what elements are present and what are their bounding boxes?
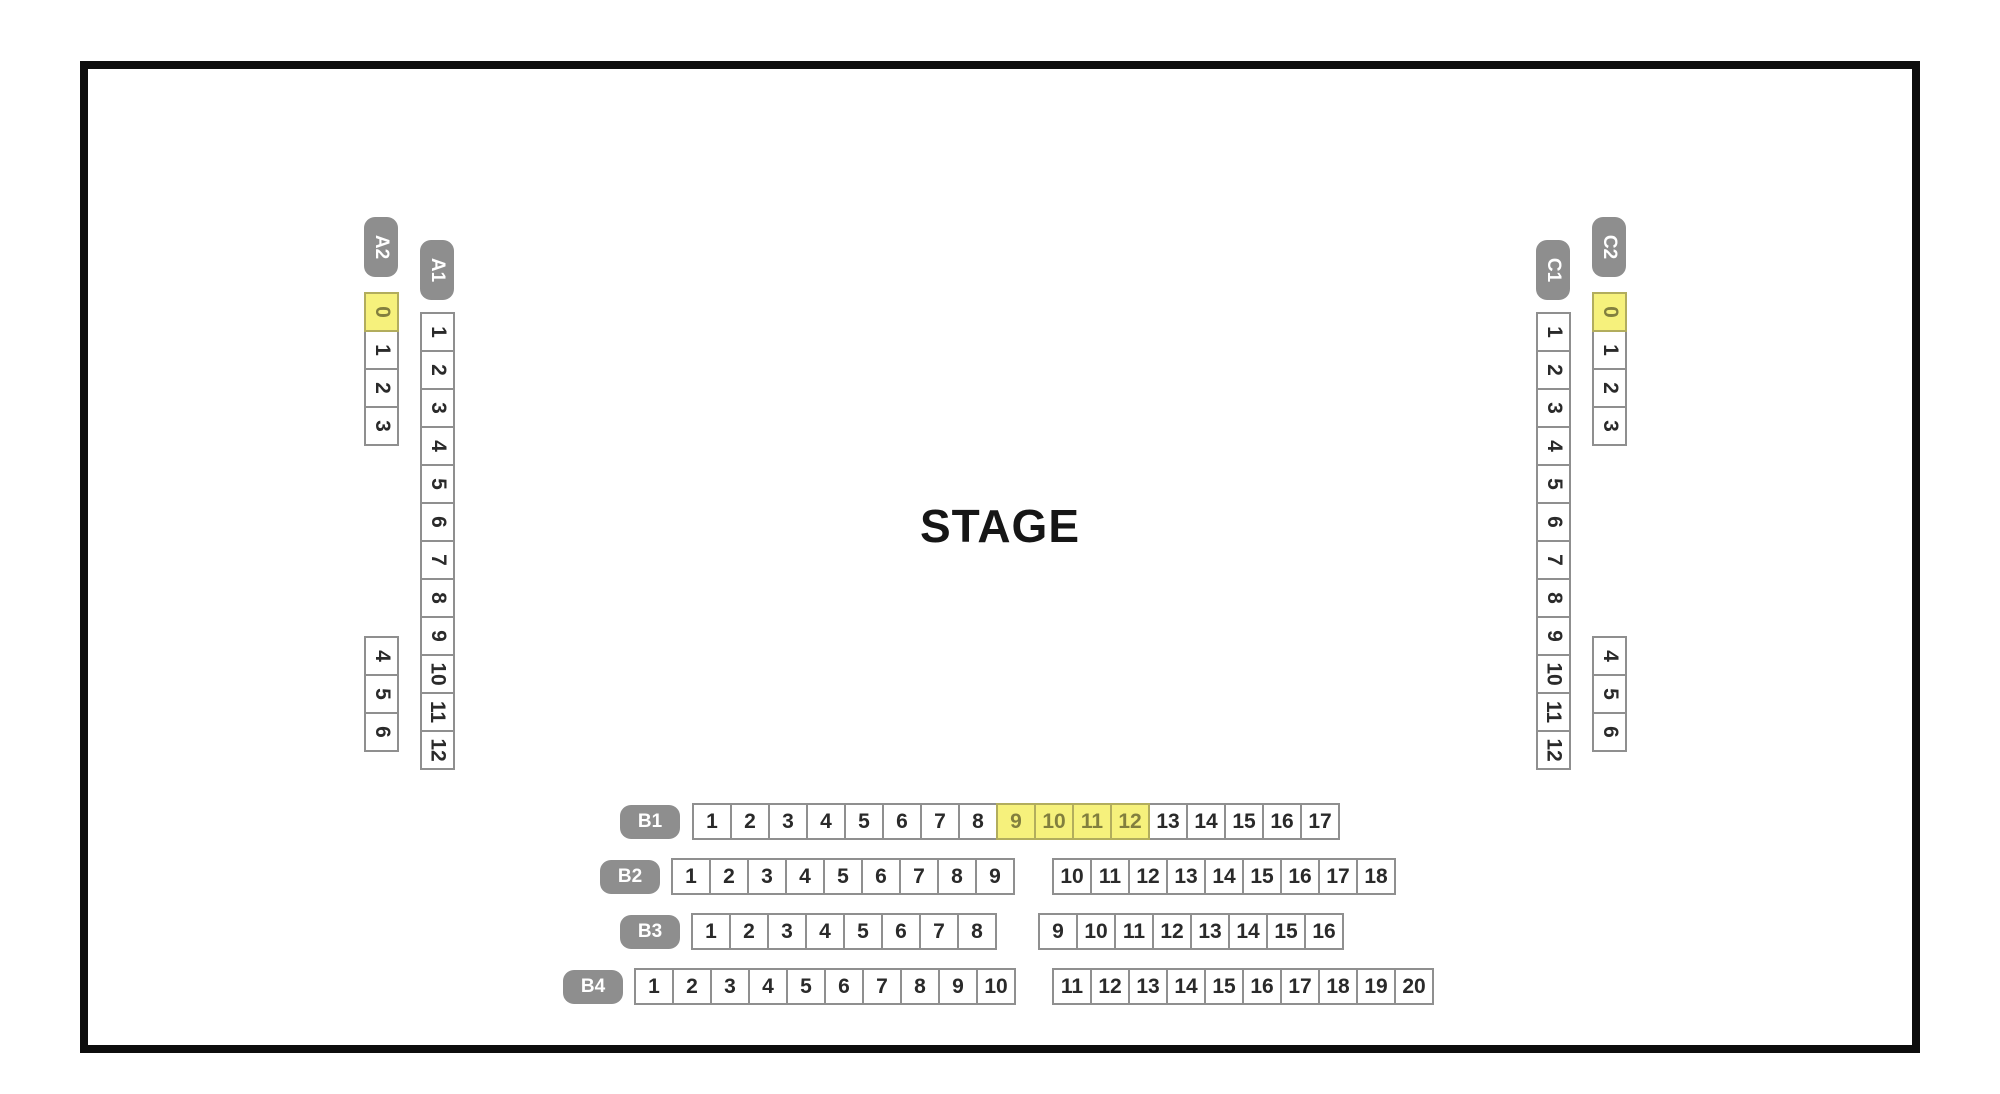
- seat-number: 5: [800, 975, 812, 999]
- seat-b3-9[interactable]: 9: [1038, 913, 1078, 950]
- seat-b4-17[interactable]: 17: [1280, 968, 1320, 1005]
- seat-c1-11[interactable]: 11: [1536, 692, 1571, 732]
- seat-number: 5: [370, 688, 394, 700]
- section-label-b2: B2: [600, 860, 660, 894]
- seat-number: 2: [1542, 364, 1566, 376]
- seat-b3-8[interactable]: 8: [957, 913, 997, 950]
- seat-number: 12: [1160, 920, 1183, 944]
- seat-a1-9[interactable]: 9: [420, 616, 455, 656]
- section-label-text: C2: [1598, 235, 1620, 259]
- seat-number: 9: [1052, 920, 1064, 944]
- seat-row-b4-2: 11121314151617181920: [1052, 968, 1434, 1005]
- seat-a2-4[interactable]: 4: [364, 636, 399, 676]
- seat-number: 2: [744, 810, 756, 834]
- seat-number: 4: [819, 920, 831, 944]
- seat-b2-12[interactable]: 12: [1128, 858, 1168, 895]
- seat-number: 0: [1598, 306, 1622, 318]
- seat-number: 7: [426, 554, 450, 566]
- seat-number: 10: [1042, 810, 1065, 834]
- seat-c1-5[interactable]: 5: [1536, 464, 1571, 504]
- seat-number: 4: [1542, 440, 1566, 452]
- seat-number: 13: [1198, 920, 1221, 944]
- seat-b1-8[interactable]: 8: [958, 803, 998, 840]
- seat-number: 12: [1136, 865, 1159, 889]
- seat-b2-9[interactable]: 9: [975, 858, 1015, 895]
- seat-number: 11: [1123, 920, 1145, 944]
- seat-a2-6[interactable]: 6: [364, 712, 399, 752]
- seat-b4-7[interactable]: 7: [862, 968, 902, 1005]
- seat-number: 6: [895, 920, 907, 944]
- seat-number: 1: [685, 865, 697, 889]
- seat-b2-13[interactable]: 13: [1166, 858, 1206, 895]
- seat-a2-0[interactable]: 0: [364, 292, 399, 332]
- seat-b3-5[interactable]: 5: [843, 913, 883, 950]
- seat-number: 4: [426, 440, 450, 452]
- seat-number: 9: [1542, 630, 1566, 642]
- seat-number: 10: [1060, 865, 1083, 889]
- section-label-text: B2: [618, 866, 642, 888]
- seat-b4-6[interactable]: 6: [824, 968, 864, 1005]
- seat-c2-3[interactable]: 3: [1592, 406, 1627, 446]
- seat-number: 3: [782, 810, 794, 834]
- seat-number: 6: [1542, 516, 1566, 528]
- seat-b4-15[interactable]: 15: [1204, 968, 1244, 1005]
- seat-number: 1: [706, 810, 718, 834]
- seat-b1-7[interactable]: 7: [920, 803, 960, 840]
- seat-c1-1[interactable]: 1: [1536, 312, 1571, 352]
- seat-number: 1: [370, 344, 394, 356]
- seat-number: 4: [799, 865, 811, 889]
- seat-number: 2: [743, 920, 755, 944]
- seat-number: 15: [1274, 920, 1297, 944]
- section-label-c1: C1: [1536, 240, 1570, 300]
- seat-number: 20: [1402, 975, 1425, 999]
- seat-b4-11[interactable]: 11: [1052, 968, 1092, 1005]
- seat-number: 11: [1061, 975, 1083, 999]
- seat-b4-1[interactable]: 1: [634, 968, 674, 1005]
- seat-b2-3[interactable]: 3: [747, 858, 787, 895]
- seat-c1-12[interactable]: 12: [1536, 730, 1571, 770]
- seat-number: 10: [1541, 662, 1565, 685]
- seat-number: 5: [837, 865, 849, 889]
- seat-number: 1: [1542, 326, 1566, 338]
- seat-b4-8[interactable]: 8: [900, 968, 940, 1005]
- seat-b4-5[interactable]: 5: [786, 968, 826, 1005]
- seat-b2-10[interactable]: 10: [1052, 858, 1092, 895]
- seating-chart: STAGE A20123456A1123456789101112C1123456…: [0, 0, 2000, 1094]
- seat-number: 3: [781, 920, 793, 944]
- seat-number: 11: [425, 701, 449, 723]
- seat-number: 7: [876, 975, 888, 999]
- seat-a1-3[interactable]: 3: [420, 388, 455, 428]
- seat-number: 8: [914, 975, 926, 999]
- section-label-a1: A1: [420, 240, 454, 300]
- seat-b1-15[interactable]: 15: [1224, 803, 1264, 840]
- seat-b3-4[interactable]: 4: [805, 913, 845, 950]
- seat-b2-6[interactable]: 6: [861, 858, 901, 895]
- seat-number: 7: [1542, 554, 1566, 566]
- seat-number: 1: [648, 975, 660, 999]
- seat-number: 6: [1598, 726, 1622, 738]
- seat-a1-1[interactable]: 1: [420, 312, 455, 352]
- seat-b2-15[interactable]: 15: [1242, 858, 1282, 895]
- seat-row-b3-2: 910111213141516: [1038, 913, 1344, 950]
- seat-number: 6: [838, 975, 850, 999]
- seat-b2-18[interactable]: 18: [1356, 858, 1396, 895]
- seat-column-c2-2: 456: [1592, 636, 1627, 752]
- seat-b4-14[interactable]: 14: [1166, 968, 1206, 1005]
- seat-number: 16: [1288, 865, 1311, 889]
- seat-number: 14: [1194, 810, 1217, 834]
- seat-number: 10: [425, 662, 449, 685]
- seat-number: 14: [1236, 920, 1259, 944]
- seat-number: 16: [1270, 810, 1293, 834]
- seat-row-b1-1: 1234567891011121314151617: [692, 803, 1340, 840]
- seat-b4-10[interactable]: 10: [976, 968, 1016, 1005]
- seat-number: 18: [1326, 975, 1349, 999]
- seat-number: 3: [1542, 402, 1566, 414]
- stage-label: STAGE: [0, 499, 2000, 553]
- seat-column-a2-2: 456: [364, 636, 399, 752]
- section-label-text: A1: [426, 258, 448, 282]
- section-label-b3: B3: [620, 915, 680, 949]
- seat-number: 3: [1598, 420, 1622, 432]
- seat-number: 6: [426, 516, 450, 528]
- seat-number: 12: [1118, 810, 1141, 834]
- seat-number: 13: [1136, 975, 1159, 999]
- seat-b3-6[interactable]: 6: [881, 913, 921, 950]
- seat-b3-10[interactable]: 10: [1076, 913, 1116, 950]
- seat-number: 12: [1098, 975, 1121, 999]
- seat-b1-3[interactable]: 3: [768, 803, 808, 840]
- seat-number: 1: [426, 326, 450, 338]
- seat-number: 8: [972, 810, 984, 834]
- seat-c2-5[interactable]: 5: [1592, 674, 1627, 714]
- seat-c1-10[interactable]: 10: [1536, 654, 1571, 694]
- seat-b2-11[interactable]: 11: [1090, 858, 1130, 895]
- seat-a1-4[interactable]: 4: [420, 426, 455, 466]
- seat-b4-16[interactable]: 16: [1242, 968, 1282, 1005]
- seat-number: 1: [705, 920, 717, 944]
- seat-b3-2[interactable]: 2: [729, 913, 769, 950]
- seat-a2-2[interactable]: 2: [364, 368, 399, 408]
- seat-number: 8: [426, 592, 450, 604]
- seat-b3-15[interactable]: 15: [1266, 913, 1306, 950]
- seat-row-b2-2: 101112131415161718: [1052, 858, 1396, 895]
- seat-number: 2: [426, 364, 450, 376]
- seat-c2-1[interactable]: 1: [1592, 330, 1627, 370]
- seat-number: 15: [1232, 810, 1255, 834]
- seat-row-b3-1: 12345678: [691, 913, 997, 950]
- section-label-text: B1: [638, 811, 662, 833]
- seat-number: 12: [425, 738, 449, 761]
- seat-number: 2: [686, 975, 698, 999]
- seat-number: 7: [913, 865, 925, 889]
- seat-c1-3[interactable]: 3: [1536, 388, 1571, 428]
- seat-row-b2-1: 123456789: [671, 858, 1015, 895]
- seat-row-b4-1: 12345678910: [634, 968, 1016, 1005]
- seat-b1-14[interactable]: 14: [1186, 803, 1226, 840]
- seat-b4-4[interactable]: 4: [748, 968, 788, 1005]
- section-label-text: A2: [370, 235, 392, 259]
- seat-b1-11[interactable]: 11: [1072, 803, 1112, 840]
- seat-a1-2[interactable]: 2: [420, 350, 455, 390]
- section-label-text: B3: [638, 921, 662, 943]
- seat-number: 5: [1598, 688, 1622, 700]
- seat-number: 13: [1174, 865, 1197, 889]
- seat-number: 9: [989, 865, 1001, 889]
- seat-b4-12[interactable]: 12: [1090, 968, 1130, 1005]
- seat-number: 7: [934, 810, 946, 834]
- seat-number: 15: [1212, 975, 1235, 999]
- seat-number: 10: [984, 975, 1007, 999]
- seat-number: 5: [858, 810, 870, 834]
- seat-number: 8: [1542, 592, 1566, 604]
- seat-number: 5: [857, 920, 869, 944]
- seat-b3-12[interactable]: 12: [1152, 913, 1192, 950]
- seat-a1-11[interactable]: 11: [420, 692, 455, 732]
- seat-number: 3: [370, 420, 394, 432]
- seat-a1-5[interactable]: 5: [420, 464, 455, 504]
- seat-b4-13[interactable]: 13: [1128, 968, 1168, 1005]
- seat-a2-3[interactable]: 3: [364, 406, 399, 446]
- seat-b3-7[interactable]: 7: [919, 913, 959, 950]
- seat-b2-14[interactable]: 14: [1204, 858, 1244, 895]
- section-label-text: B4: [581, 976, 605, 998]
- seat-b2-8[interactable]: 8: [937, 858, 977, 895]
- seat-number: 8: [971, 920, 983, 944]
- seat-c1-9[interactable]: 9: [1536, 616, 1571, 656]
- seat-column-c1-1: 123456789101112: [1536, 312, 1571, 770]
- seat-number: 6: [370, 726, 394, 738]
- seat-b2-17[interactable]: 17: [1318, 858, 1358, 895]
- seat-b4-2[interactable]: 2: [672, 968, 712, 1005]
- seat-b4-3[interactable]: 3: [710, 968, 750, 1005]
- seat-b3-3[interactable]: 3: [767, 913, 807, 950]
- seat-number: 9: [1010, 810, 1022, 834]
- seat-number: 6: [896, 810, 908, 834]
- seat-b1-5[interactable]: 5: [844, 803, 884, 840]
- seat-c1-6[interactable]: 6: [1536, 502, 1571, 542]
- seat-number: 4: [1598, 650, 1622, 662]
- seat-number: 5: [426, 478, 450, 490]
- seat-b4-18[interactable]: 18: [1318, 968, 1358, 1005]
- seat-b1-4[interactable]: 4: [806, 803, 846, 840]
- seat-number: 12: [1541, 738, 1565, 761]
- section-label-a2: A2: [364, 217, 398, 277]
- seat-c2-4[interactable]: 4: [1592, 636, 1627, 676]
- seat-b3-13[interactable]: 13: [1190, 913, 1230, 950]
- seat-number: 0: [370, 306, 394, 318]
- seat-c1-4[interactable]: 4: [1536, 426, 1571, 466]
- seat-a1-8[interactable]: 8: [420, 578, 455, 618]
- seat-number: 18: [1364, 865, 1387, 889]
- seat-number: 11: [1081, 810, 1103, 834]
- seat-b1-12[interactable]: 12: [1110, 803, 1150, 840]
- seat-number: 11: [1541, 701, 1565, 723]
- seat-number: 16: [1312, 920, 1335, 944]
- seat-c1-8[interactable]: 8: [1536, 578, 1571, 618]
- seat-c1-7[interactable]: 7: [1536, 540, 1571, 580]
- seat-b2-2[interactable]: 2: [709, 858, 749, 895]
- seat-number: 17: [1326, 865, 1349, 889]
- seat-number: 4: [762, 975, 774, 999]
- venue-outline: [80, 61, 1920, 1053]
- seat-c2-2[interactable]: 2: [1592, 368, 1627, 408]
- section-label-b4: B4: [563, 970, 623, 1004]
- seat-b1-10[interactable]: 10: [1034, 803, 1074, 840]
- seat-c1-2[interactable]: 2: [1536, 350, 1571, 390]
- seat-b3-16[interactable]: 16: [1304, 913, 1344, 950]
- seat-b2-5[interactable]: 5: [823, 858, 863, 895]
- seat-b1-13[interactable]: 13: [1148, 803, 1188, 840]
- seat-number: 4: [370, 650, 394, 662]
- seat-number: 9: [426, 630, 450, 642]
- seat-b2-1[interactable]: 1: [671, 858, 711, 895]
- seat-number: 19: [1364, 975, 1387, 999]
- seat-number: 2: [723, 865, 735, 889]
- seat-b4-20[interactable]: 20: [1394, 968, 1434, 1005]
- seat-b1-6[interactable]: 6: [882, 803, 922, 840]
- seat-number: 3: [761, 865, 773, 889]
- seat-b1-17[interactable]: 17: [1300, 803, 1340, 840]
- seat-a1-12[interactable]: 12: [420, 730, 455, 770]
- seat-column-c2-1: 0123: [1592, 292, 1627, 446]
- seat-number: 11: [1099, 865, 1121, 889]
- seat-b4-9[interactable]: 9: [938, 968, 978, 1005]
- seat-a1-10[interactable]: 10: [420, 654, 455, 694]
- seat-b2-7[interactable]: 7: [899, 858, 939, 895]
- seat-column-a2-1: 0123: [364, 292, 399, 446]
- seat-number: 16: [1250, 975, 1273, 999]
- seat-number: 5: [1542, 478, 1566, 490]
- section-label-b1: B1: [620, 805, 680, 839]
- seat-a2-1[interactable]: 1: [364, 330, 399, 370]
- seat-a2-5[interactable]: 5: [364, 674, 399, 714]
- seat-number: 3: [724, 975, 736, 999]
- seat-number: 17: [1288, 975, 1311, 999]
- seat-b2-4[interactable]: 4: [785, 858, 825, 895]
- seat-number: 6: [875, 865, 887, 889]
- seat-number: 7: [933, 920, 945, 944]
- seat-b1-1[interactable]: 1: [692, 803, 732, 840]
- seat-column-a1-1: 123456789101112: [420, 312, 455, 770]
- seat-b3-1[interactable]: 1: [691, 913, 731, 950]
- seat-c2-0[interactable]: 0: [1592, 292, 1627, 332]
- seat-b3-14[interactable]: 14: [1228, 913, 1268, 950]
- seat-number: 14: [1174, 975, 1197, 999]
- section-label-text: C1: [1542, 258, 1564, 282]
- seat-a1-6[interactable]: 6: [420, 502, 455, 542]
- seat-number: 2: [370, 382, 394, 394]
- seat-number: 13: [1156, 810, 1179, 834]
- seat-number: 14: [1212, 865, 1235, 889]
- seat-c2-6[interactable]: 6: [1592, 712, 1627, 752]
- seat-number: 17: [1308, 810, 1331, 834]
- seat-b1-2[interactable]: 2: [730, 803, 770, 840]
- seat-number: 9: [952, 975, 964, 999]
- seat-b4-19[interactable]: 19: [1356, 968, 1396, 1005]
- seat-number: 4: [820, 810, 832, 834]
- seat-number: 10: [1084, 920, 1107, 944]
- seat-b1-9[interactable]: 9: [996, 803, 1036, 840]
- seat-b2-16[interactable]: 16: [1280, 858, 1320, 895]
- seat-a1-7[interactable]: 7: [420, 540, 455, 580]
- section-label-c2: C2: [1592, 217, 1626, 277]
- seat-number: 3: [426, 402, 450, 414]
- seat-number: 1: [1598, 344, 1622, 356]
- seat-b1-16[interactable]: 16: [1262, 803, 1302, 840]
- seat-number: 15: [1250, 865, 1273, 889]
- seat-number: 8: [951, 865, 963, 889]
- seat-number: 2: [1598, 382, 1622, 394]
- seat-b3-11[interactable]: 11: [1114, 913, 1154, 950]
